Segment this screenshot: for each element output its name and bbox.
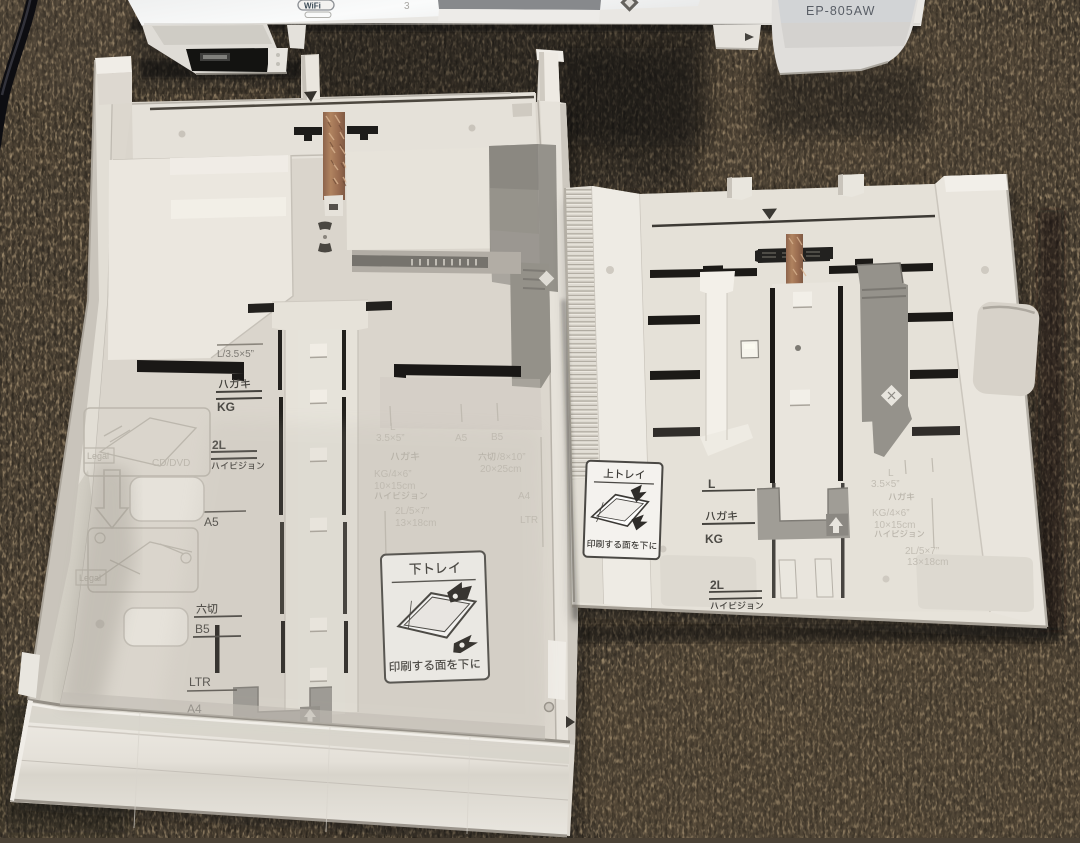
svg-text:10×15cm: 10×15cm bbox=[874, 520, 915, 531]
svg-text:13×18cm: 13×18cm bbox=[907, 557, 948, 568]
svg-text:Legal: Legal bbox=[87, 451, 109, 461]
svg-text:CD/DVD: CD/DVD bbox=[152, 458, 190, 469]
svg-text:L/3.5×5”: L/3.5×5” bbox=[217, 349, 254, 360]
svg-text:L: L bbox=[708, 477, 715, 491]
svg-text:EP-805AW: EP-805AW bbox=[806, 4, 875, 18]
svg-text:KG/4×6”: KG/4×6” bbox=[872, 508, 910, 519]
svg-text:3.5×5”: 3.5×5” bbox=[871, 479, 900, 490]
svg-text:KG: KG bbox=[705, 532, 723, 546]
svg-text:KG: KG bbox=[217, 400, 235, 414]
svg-text:WiFi: WiFi bbox=[304, 2, 321, 11]
svg-text:3: 3 bbox=[404, 1, 410, 12]
svg-text:L: L bbox=[888, 468, 894, 479]
svg-text:2L: 2L bbox=[710, 578, 724, 592]
